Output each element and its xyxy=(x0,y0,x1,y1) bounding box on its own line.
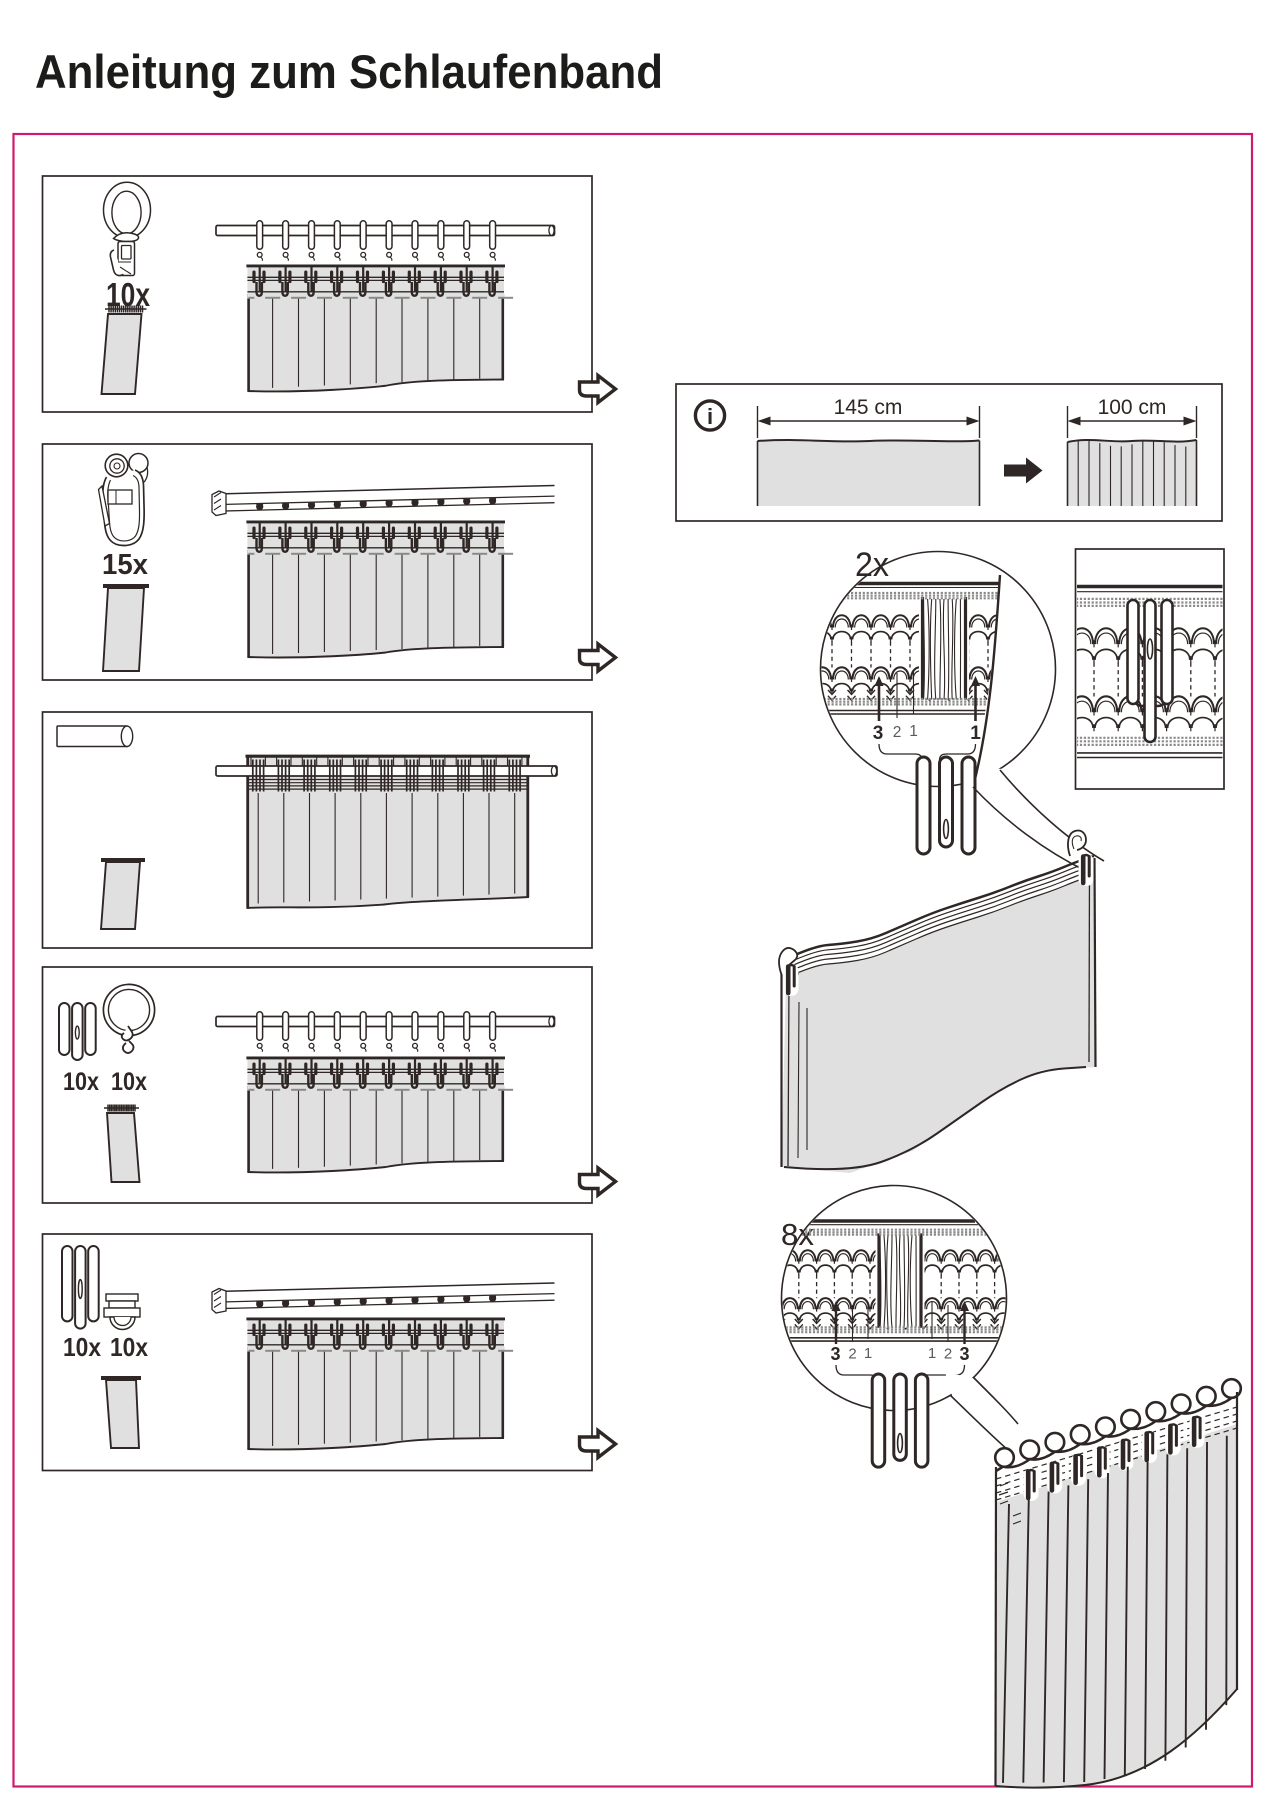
svg-text:3: 3 xyxy=(830,1344,840,1364)
svg-text:1: 1 xyxy=(864,1345,872,1362)
svg-text:3: 3 xyxy=(959,1344,969,1364)
svg-text:145 cm: 145 cm xyxy=(834,396,903,419)
svg-text:2: 2 xyxy=(944,1346,952,1363)
svg-text:1: 1 xyxy=(970,723,981,744)
svg-text:1: 1 xyxy=(928,1345,936,1362)
svg-text:10x: 10x xyxy=(63,1332,101,1362)
svg-text:3: 3 xyxy=(873,723,884,744)
svg-text:2: 2 xyxy=(893,724,902,741)
svg-text:10x: 10x xyxy=(111,1068,147,1096)
svg-text:100 cm: 100 cm xyxy=(1098,396,1167,419)
svg-text:1: 1 xyxy=(909,723,918,740)
svg-text:2x: 2x xyxy=(855,546,889,584)
svg-text:10x: 10x xyxy=(63,1068,99,1096)
svg-text:i: i xyxy=(707,404,713,429)
svg-text:Anleitung zum Schlaufenband: Anleitung zum Schlaufenband xyxy=(35,45,663,98)
svg-text:2: 2 xyxy=(848,1346,856,1363)
svg-text:10x: 10x xyxy=(110,1332,148,1362)
svg-text:15x: 15x xyxy=(102,549,148,581)
